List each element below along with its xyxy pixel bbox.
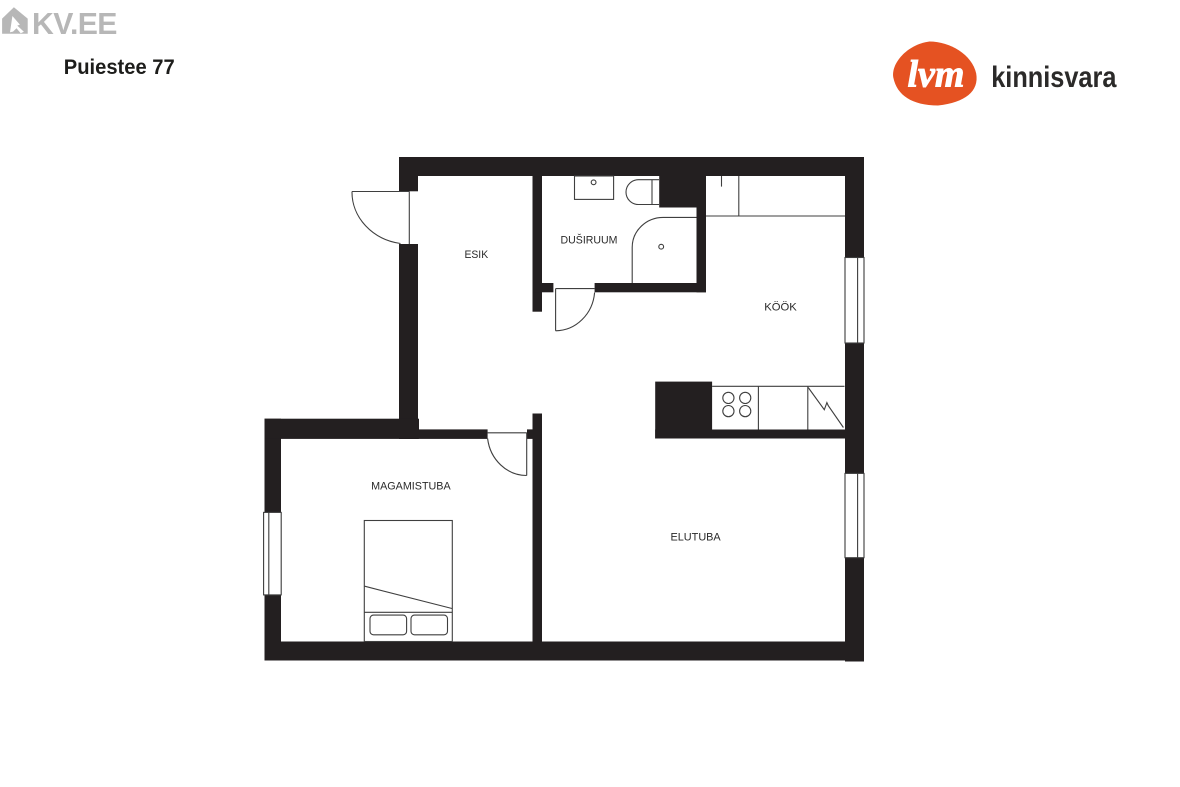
svg-text:ESIK: ESIK bbox=[464, 249, 488, 261]
svg-text:MAGAMISTUBA: MAGAMISTUBA bbox=[371, 481, 451, 493]
svg-text:DUŠIRUUM: DUŠIRUUM bbox=[561, 234, 618, 247]
svg-text:lvm: lvm bbox=[908, 54, 965, 96]
svg-text:ELUTUBA: ELUTUBA bbox=[671, 531, 722, 543]
svg-text:kinnisvara: kinnisvara bbox=[991, 60, 1117, 93]
svg-text:Puiestee 77: Puiestee 77 bbox=[64, 55, 175, 79]
svg-text:KV.EE: KV.EE bbox=[32, 8, 117, 41]
svg-text:KÖÖK: KÖÖK bbox=[764, 302, 797, 314]
